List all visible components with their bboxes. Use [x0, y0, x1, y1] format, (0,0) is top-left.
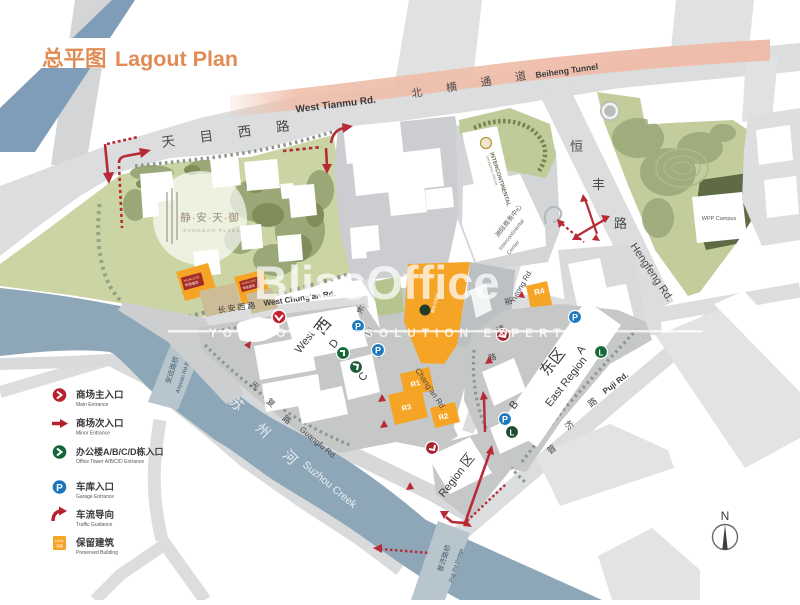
- svg-text:Main Entrance: Main Entrance: [76, 402, 108, 408]
- svg-text:HUAL: HUAL: [55, 539, 64, 543]
- svg-text:车库入口: 车库入口: [76, 481, 114, 493]
- svg-text:丰: 丰: [592, 177, 605, 192]
- svg-text:办公楼A/B/C/D栋入口: 办公楼A/B/C/D栋入口: [76, 446, 164, 457]
- svg-text:WPP Campus: WPP Campus: [702, 216, 737, 222]
- svg-text:保留建筑: 保留建筑: [75, 537, 115, 549]
- svg-text:总平图: 总平图: [42, 46, 107, 71]
- svg-text:Preserved Building: Preserved Building: [76, 550, 118, 556]
- svg-text:保留: 保留: [56, 543, 62, 548]
- svg-text:L: L: [599, 349, 604, 358]
- svg-text:P: P: [572, 313, 578, 323]
- svg-text:Office Tower A/B/C/D Entrance: Office Tower A/B/C/D Entrance: [76, 459, 144, 465]
- svg-text:静·安·天·御: 静·安·天·御: [180, 211, 240, 224]
- svg-text:Lagout Plan: Lagout Plan: [115, 47, 238, 71]
- svg-text:N: N: [721, 509, 730, 523]
- svg-text:Minor Entrance: Minor Entrance: [76, 431, 110, 437]
- svg-text:YOUR OFFICE SOLUTION EXPERT: YOUR OFFICE SOLUTION EXPERT: [209, 328, 567, 340]
- svg-text:商场次入口: 商场次入口: [76, 418, 124, 430]
- svg-text:路: 路: [614, 216, 627, 231]
- svg-text:P: P: [502, 415, 508, 425]
- svg-text:商场主入口: 商场主入口: [76, 389, 124, 401]
- svg-text:车流导向: 车流导向: [76, 509, 114, 521]
- svg-text:恒: 恒: [570, 139, 583, 154]
- svg-text:L: L: [510, 429, 515, 438]
- svg-text:P: P: [375, 346, 381, 356]
- svg-text:Garage Entrance: Garage Entrance: [76, 494, 114, 500]
- svg-text:BlissOffice: BlissOffice: [254, 256, 500, 309]
- svg-text:ZHONGAN PLAZA: ZHONGAN PLAZA: [183, 228, 241, 233]
- svg-text:P: P: [56, 483, 63, 494]
- svg-text:Traffic Guidance: Traffic Guidance: [76, 522, 113, 528]
